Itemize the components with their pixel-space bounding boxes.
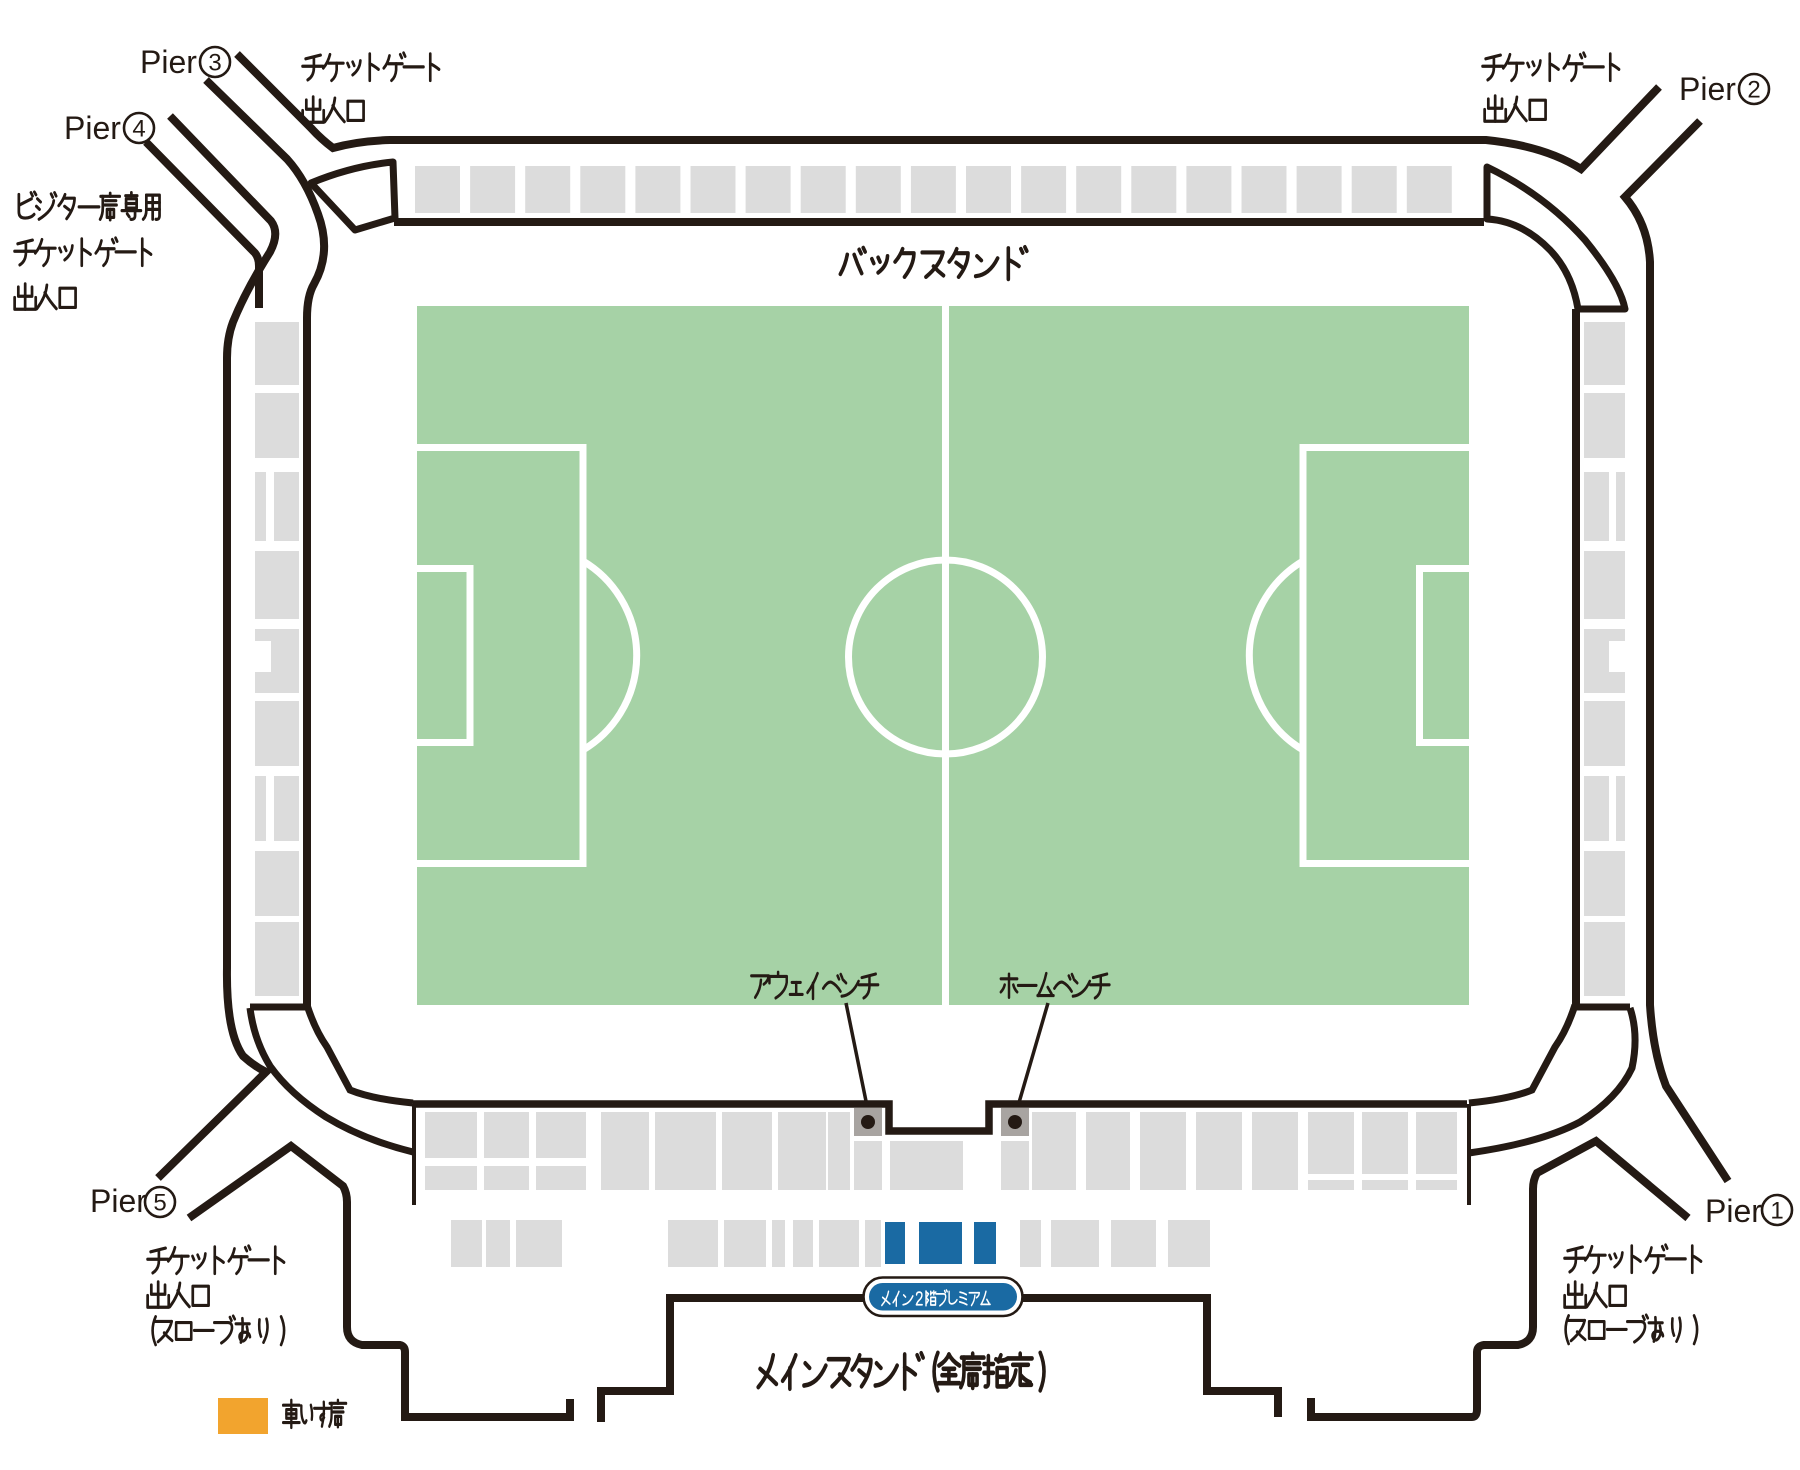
- svg-text:1: 1: [1770, 1198, 1783, 1225]
- svg-text:2: 2: [1747, 77, 1760, 104]
- svg-text:Pier: Pier: [90, 1183, 147, 1219]
- svg-text:Pier: Pier: [1705, 1193, 1762, 1229]
- svg-text:Pier: Pier: [64, 110, 121, 146]
- svg-text:Pier: Pier: [1679, 71, 1736, 107]
- svg-text:Pier: Pier: [140, 44, 197, 80]
- svg-text:4: 4: [132, 116, 145, 143]
- svg-text:3: 3: [208, 50, 221, 77]
- svg-text:5: 5: [153, 1190, 166, 1217]
